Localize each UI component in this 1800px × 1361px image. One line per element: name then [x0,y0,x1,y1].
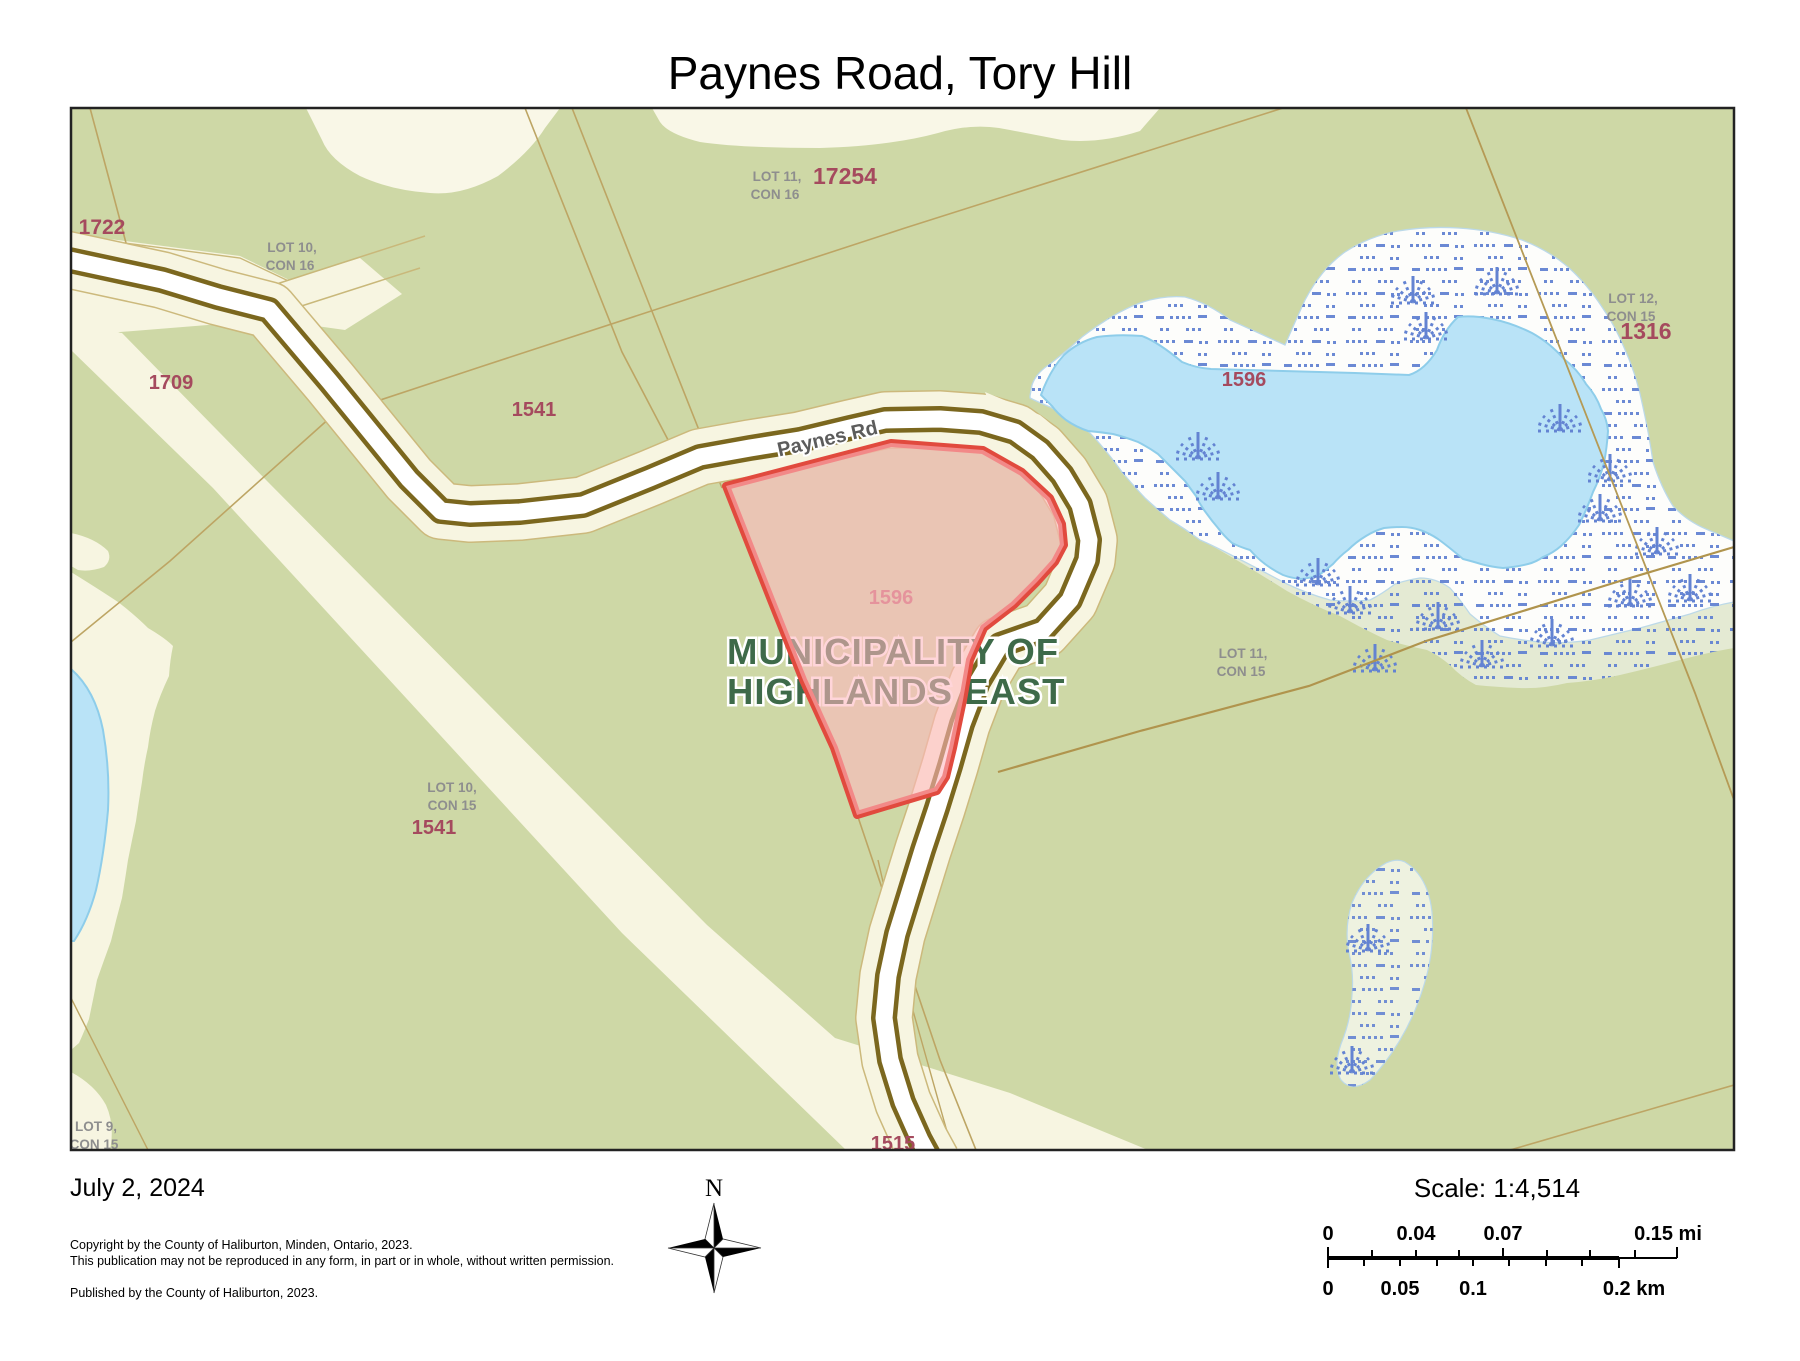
svg-text:0.05: 0.05 [1381,1278,1420,1300]
svg-text:N: N [705,1175,723,1202]
svg-text:0.2 km: 0.2 km [1603,1278,1665,1300]
svg-text:CON 15: CON 15 [428,798,477,813]
svg-text:Paynes Road, Tory Hill: Paynes Road, Tory Hill [668,47,1132,99]
svg-text:0: 0 [1322,1223,1333,1245]
svg-text:Published by the County of Hal: Published by the County of Haliburton, 2… [70,1286,318,1300]
svg-text:CON 16: CON 16 [751,187,800,202]
svg-text:Copyright by the County of Hal: Copyright by the County of Haliburton, M… [70,1238,413,1252]
svg-text:LOT 11,: LOT 11, [753,169,802,184]
svg-text:17254: 17254 [813,163,877,189]
svg-text:1541: 1541 [412,817,457,839]
svg-text:Scale: 1:4,514: Scale: 1:4,514 [1414,1173,1580,1203]
svg-text:LOT 10,: LOT 10, [267,240,317,255]
svg-text:CON 15: CON 15 [1217,664,1266,679]
svg-text:LOT 12,: LOT 12, [1608,291,1658,306]
svg-text:0.1: 0.1 [1459,1278,1487,1300]
svg-text:0.15 mi: 0.15 mi [1634,1223,1702,1245]
svg-text:1596: 1596 [1222,369,1267,391]
svg-text:LOT 10,: LOT 10, [427,780,477,795]
svg-text:0.04: 0.04 [1397,1223,1437,1245]
svg-text:0.07: 0.07 [1484,1223,1523,1245]
svg-text:LOT 11,: LOT 11, [1219,646,1268,661]
svg-text:July 2, 2024: July 2, 2024 [70,1174,205,1202]
svg-text:0: 0 [1322,1278,1333,1300]
svg-text:LOT 9,: LOT 9, [75,1119,117,1134]
svg-text:This publication may not be re: This publication may not be reproduced i… [70,1254,614,1268]
svg-text:1709: 1709 [149,372,194,394]
svg-text:1722: 1722 [79,216,126,239]
svg-text:1316: 1316 [1620,318,1671,344]
svg-text:CON 16: CON 16 [266,258,315,273]
svg-text:1541: 1541 [512,399,557,421]
